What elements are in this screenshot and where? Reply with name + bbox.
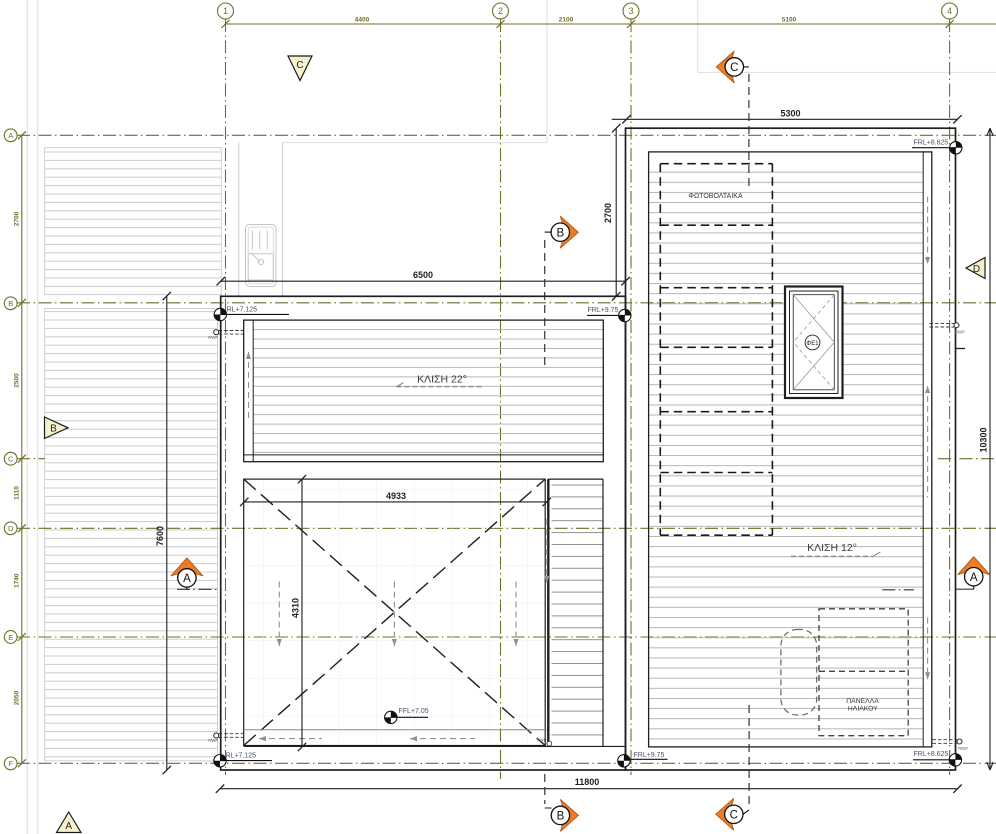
svg-text:2100: 2100 [559, 17, 574, 24]
svg-text:11800: 11800 [575, 777, 600, 787]
svg-text:B: B [556, 227, 564, 239]
svg-text:A: A [65, 821, 72, 832]
svg-text:B: B [50, 424, 57, 435]
svg-text:F: F [8, 759, 13, 768]
svg-text:FRL+9.75: FRL+9.75 [634, 752, 665, 759]
svg-text:ΚΛΙΣΗ 22°: ΚΛΙΣΗ 22° [417, 374, 467, 386]
svg-text:ΦΕ1: ΦΕ1 [806, 341, 819, 347]
svg-text:RWP: RWP [208, 335, 218, 340]
svg-text:B: B [557, 811, 565, 823]
svg-text:RWP: RWP [208, 738, 218, 743]
svg-text:2: 2 [498, 6, 503, 16]
svg-text:D: D [8, 524, 14, 533]
svg-text:RWP: RWP [958, 746, 968, 751]
svg-text:ΠΑΝΕΛΛΑ: ΠΑΝΕΛΛΑ [846, 698, 879, 705]
svg-text:2500: 2500 [14, 373, 21, 388]
svg-text:C: C [8, 455, 14, 464]
svg-text:C: C [296, 60, 303, 71]
svg-text:4400: 4400 [355, 17, 370, 24]
svg-text:FRL+8.625: FRL+8.625 [914, 751, 949, 758]
svg-text:FFL+7.05: FFL+7.05 [399, 708, 429, 715]
svg-text:1740: 1740 [14, 573, 21, 588]
svg-text:RWP: RWP [537, 738, 547, 743]
svg-text:4: 4 [947, 6, 952, 16]
svg-text:2700: 2700 [14, 211, 21, 226]
svg-text:C: C [730, 62, 738, 74]
svg-text:E: E [8, 633, 13, 642]
svg-text:RL+7.125: RL+7.125 [227, 306, 258, 313]
svg-text:7600: 7600 [155, 526, 165, 546]
svg-text:A: A [8, 131, 13, 140]
svg-text:5300: 5300 [780, 108, 800, 118]
svg-text:B: B [8, 299, 13, 308]
svg-text:FRL+8.625: FRL+8.625 [914, 140, 949, 147]
svg-text:1110: 1110 [14, 486, 21, 500]
svg-text:RWP: RWP [955, 330, 965, 335]
svg-text:C: C [730, 809, 738, 821]
svg-text:RL+7.125: RL+7.125 [226, 752, 257, 759]
svg-text:ΗΛΙΑΚΟΥ: ΗΛΙΑΚΟΥ [848, 705, 878, 712]
svg-text:6500: 6500 [413, 270, 433, 280]
svg-text:4933: 4933 [386, 491, 406, 501]
svg-text:2700: 2700 [603, 203, 613, 223]
svg-text:5100: 5100 [782, 17, 797, 24]
svg-text:A: A [183, 573, 191, 585]
svg-text:A: A [970, 572, 978, 584]
svg-text:3: 3 [628, 6, 633, 16]
svg-text:ΚΛΙΣΗ 12°: ΚΛΙΣΗ 12° [807, 542, 857, 554]
svg-text:2050: 2050 [14, 690, 21, 705]
svg-text:4310: 4310 [290, 598, 300, 618]
svg-text:D: D [973, 264, 980, 275]
svg-text:ΦΩΤΟΒΟΛΤΑΙΚΑ: ΦΩΤΟΒΟΛΤΑΙΚΑ [688, 193, 743, 200]
svg-text:1: 1 [223, 6, 228, 16]
svg-text:10300: 10300 [978, 427, 988, 452]
svg-text:FRL+9.75: FRL+9.75 [588, 307, 619, 314]
